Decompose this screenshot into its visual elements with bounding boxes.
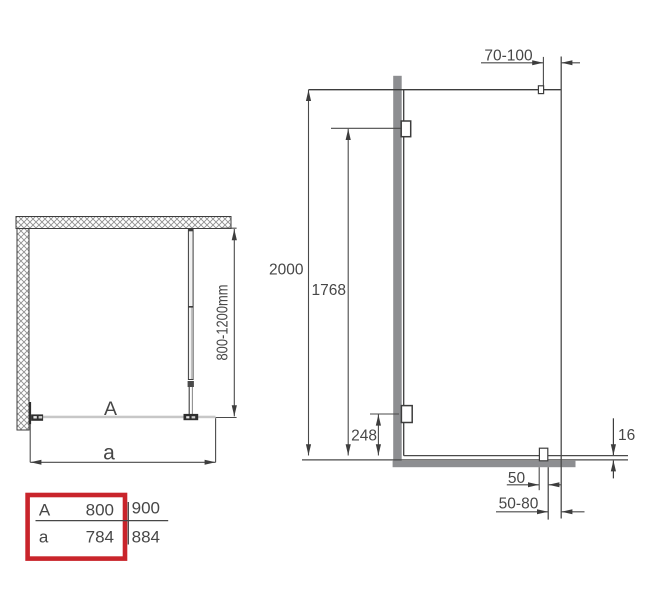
svg-text:16: 16 [618,427,635,444]
svg-text:800: 800 [86,500,114,519]
svg-text:900: 900 [132,499,160,518]
svg-text:248: 248 [351,428,377,445]
svg-text:a: a [39,528,49,547]
svg-text:2000: 2000 [269,262,304,279]
svg-text:884: 884 [132,528,160,547]
svg-text:784: 784 [86,528,114,547]
svg-text:a: a [103,442,115,465]
svg-text:A: A [104,398,117,420]
svg-text:1768: 1768 [312,282,346,299]
svg-text:A: A [39,500,51,519]
svg-text:70-100: 70-100 [484,47,533,64]
svg-text:800-1200mm: 800-1200mm [215,285,232,361]
svg-text:50-80: 50-80 [499,495,539,512]
